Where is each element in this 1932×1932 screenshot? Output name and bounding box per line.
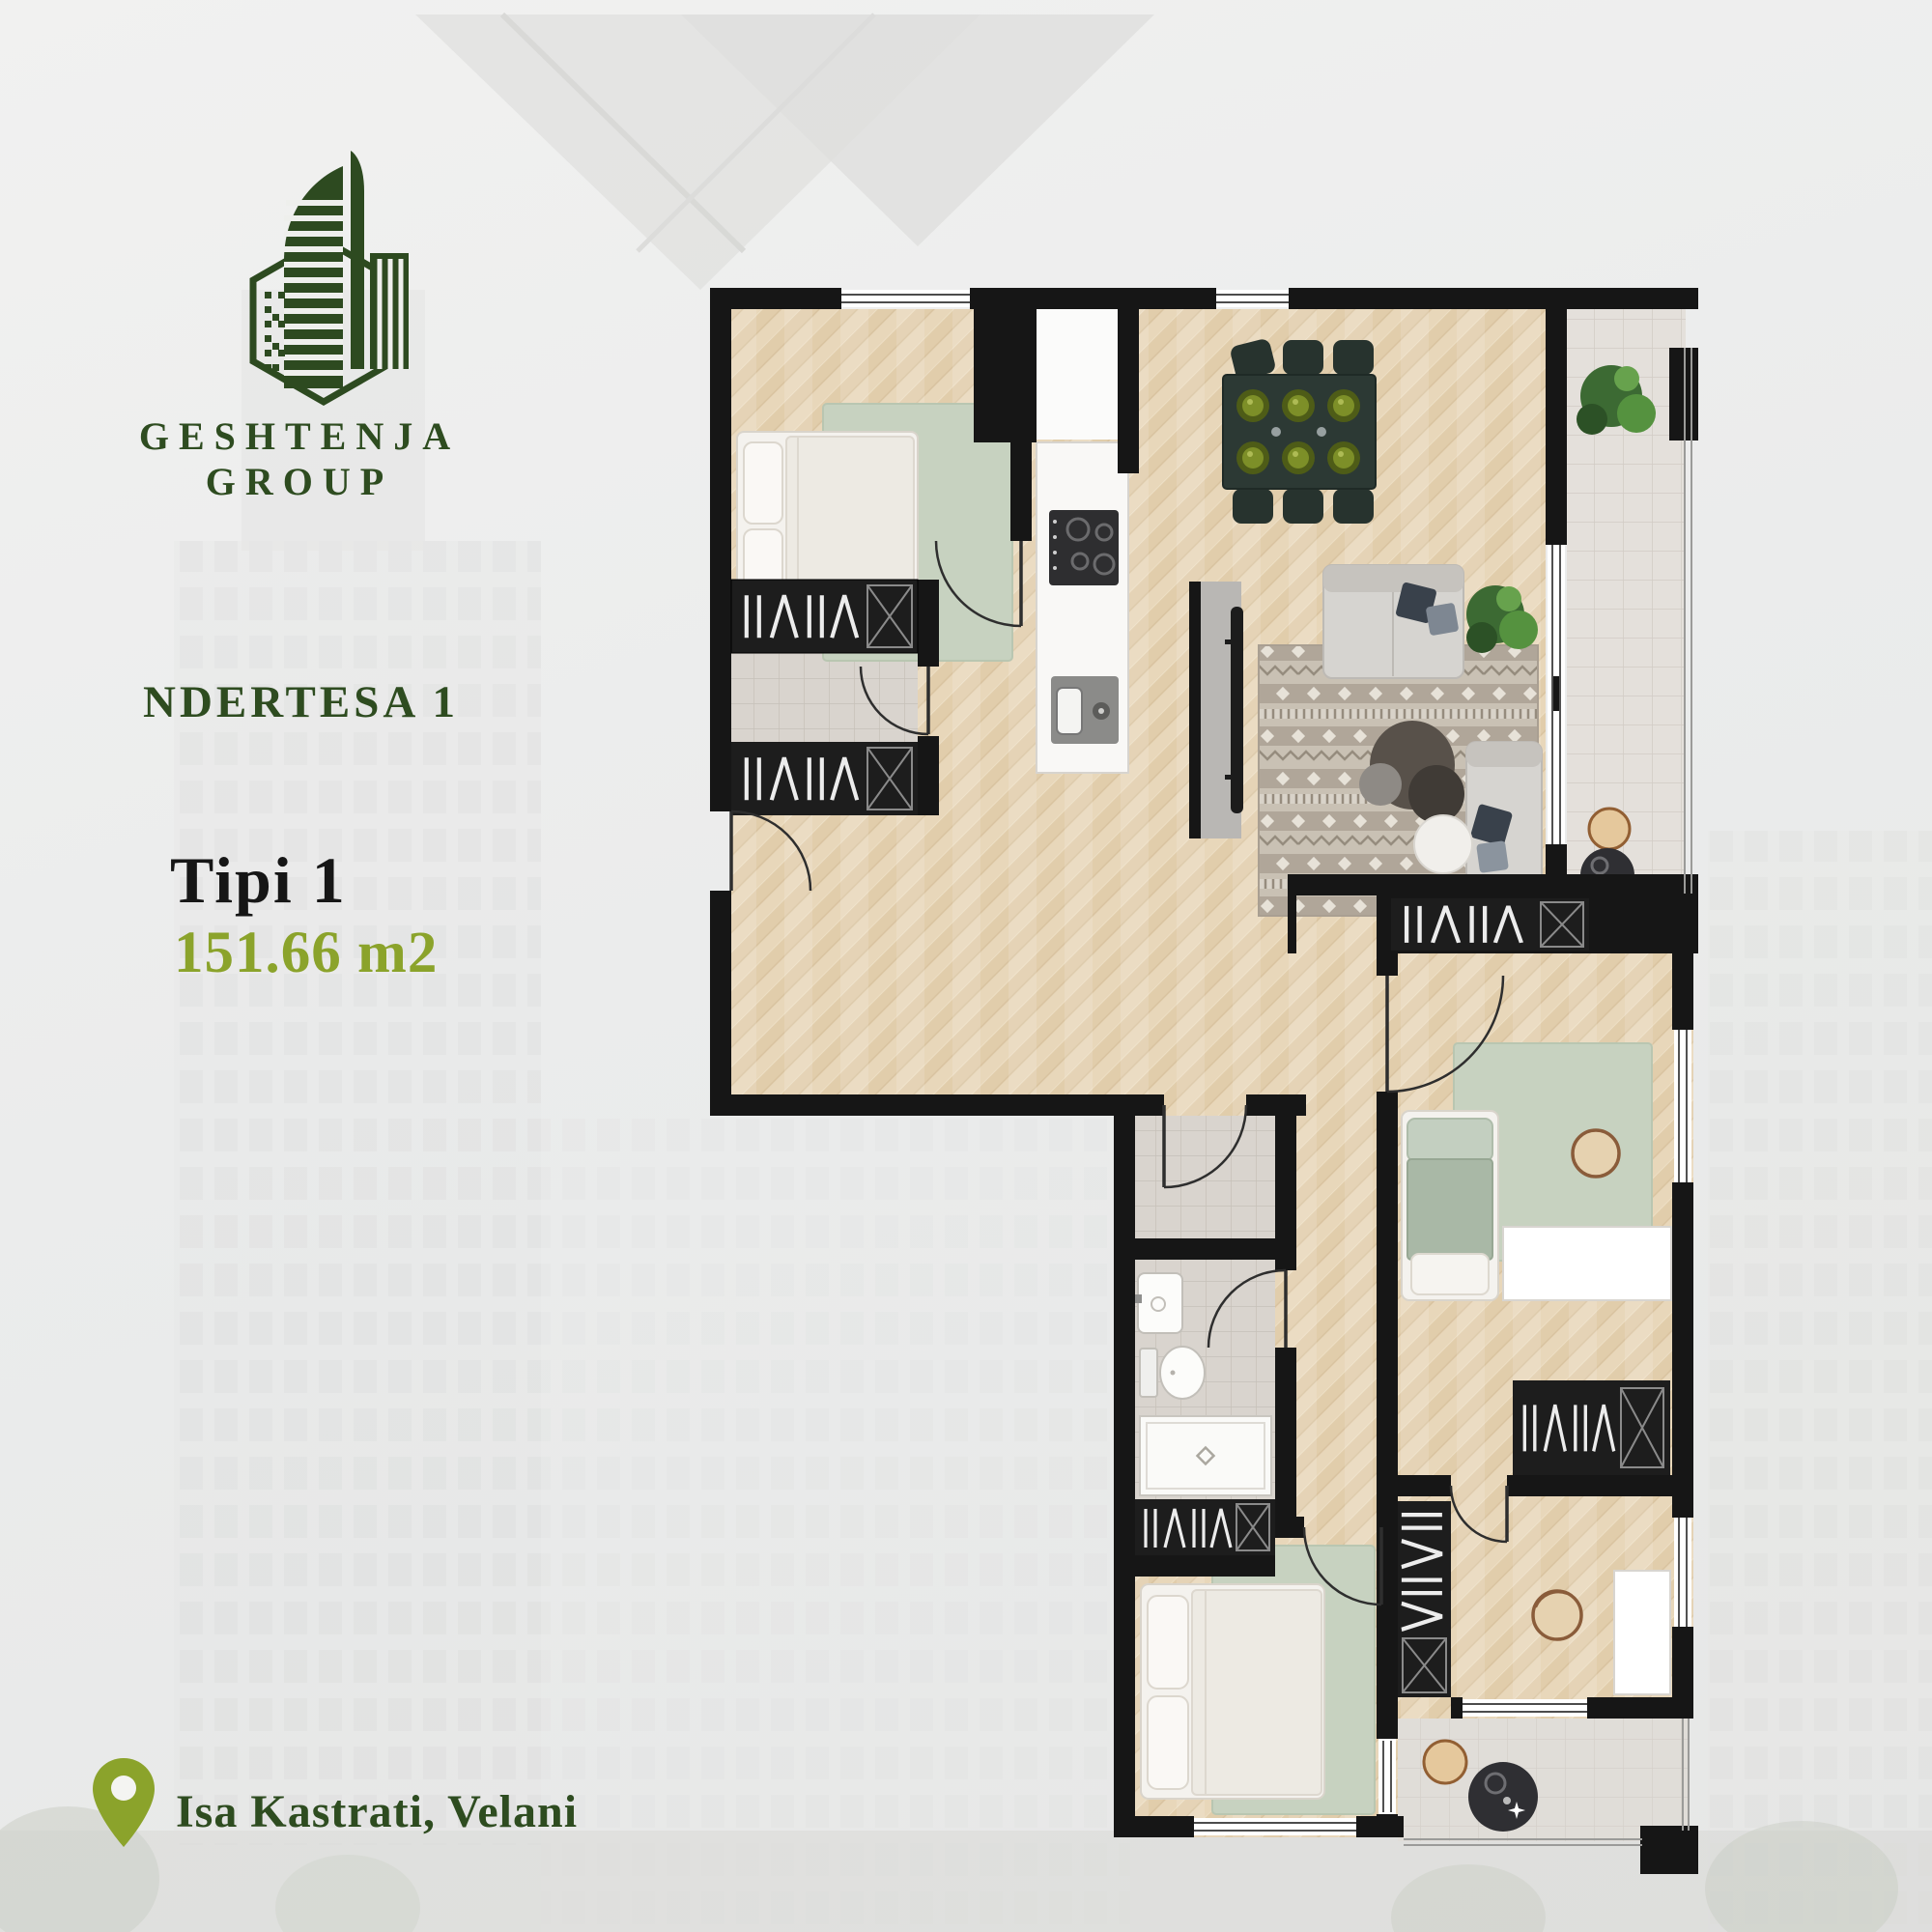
location-label: Isa Kastrati, Velani	[176, 1785, 578, 1838]
window	[1457, 1697, 1593, 1719]
cooktop	[1049, 510, 1119, 585]
terrace-door-window	[1378, 1739, 1396, 1814]
closet-floor	[731, 653, 918, 742]
wardrobe-vertical	[1398, 1501, 1451, 1697]
sofa	[1323, 565, 1463, 678]
real-estate-poster: GESHTENJA GROUP NDERTESA 1 Tipi 1 151.66…	[0, 0, 1932, 1932]
wardrobe	[1513, 1380, 1670, 1475]
dining-chair	[1333, 489, 1374, 524]
type-label: Tipi 1	[170, 842, 347, 919]
double-bed	[1141, 1584, 1324, 1799]
building-label: NDERTESA 1	[143, 676, 459, 728]
area-label: 151.66 m2	[174, 920, 438, 987]
toilet	[1140, 1347, 1205, 1399]
second-bedroom	[1141, 1546, 1375, 1814]
dining-chair	[1233, 489, 1273, 524]
single-bed	[1402, 1111, 1498, 1300]
desk	[1503, 1227, 1671, 1300]
desk	[1614, 1571, 1670, 1694]
window	[1672, 1024, 1693, 1188]
window	[1188, 1816, 1362, 1837]
wardrobe	[1391, 898, 1589, 951]
tv-panel	[1189, 582, 1243, 838]
dining-chair	[1283, 340, 1323, 375]
window	[1546, 539, 1567, 850]
wardrobe	[731, 580, 918, 653]
kitchen	[1037, 442, 1128, 773]
kitchen-sink	[1051, 676, 1119, 744]
balcony-chair	[1589, 809, 1630, 849]
dining-area	[1223, 337, 1376, 524]
shower-tray	[1140, 1416, 1271, 1495]
terrace-chair	[1424, 1741, 1466, 1783]
window	[1672, 1512, 1693, 1633]
dining-chair	[1283, 489, 1323, 524]
window	[1210, 288, 1294, 309]
wardrobe	[731, 742, 918, 815]
brand-logo	[253, 151, 409, 402]
round-chair	[1533, 1591, 1581, 1639]
dining-chair	[1333, 340, 1374, 375]
brand-name: GESHTENJA GROUP	[68, 413, 531, 504]
window	[836, 288, 976, 309]
terrace-table	[1468, 1762, 1538, 1832]
kitchen-niche-floor	[1037, 309, 1118, 440]
wardrobe	[1135, 1499, 1275, 1555]
